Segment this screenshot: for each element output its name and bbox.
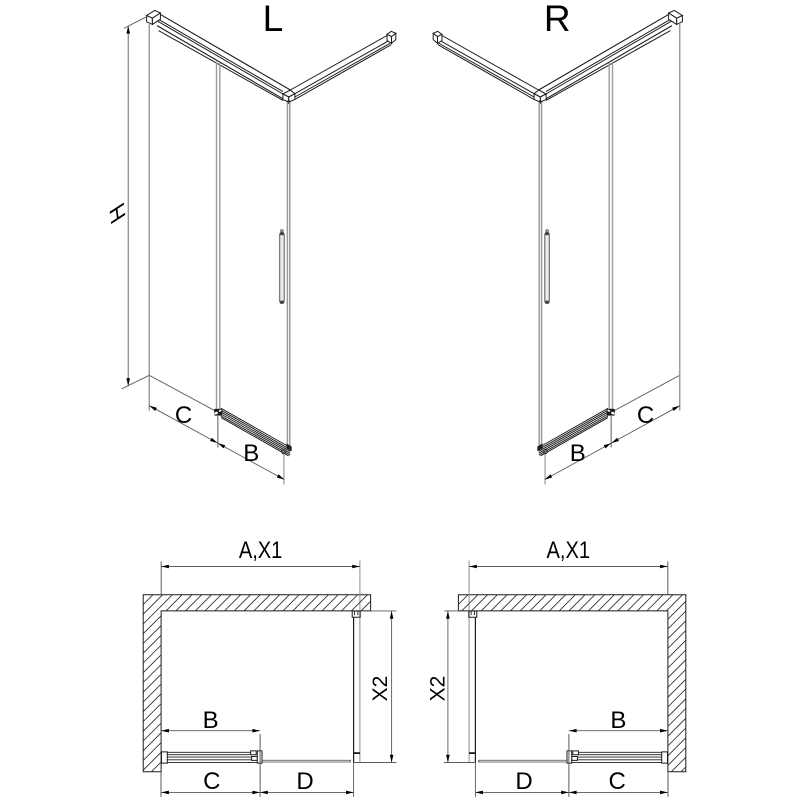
svg-text:R: R	[544, 0, 571, 39]
svg-text:B: B	[203, 707, 219, 734]
svg-text:X2: X2	[426, 676, 449, 702]
svg-text:C: C	[203, 768, 220, 795]
svg-text:L: L	[263, 0, 284, 39]
svg-text:C: C	[175, 402, 192, 429]
svg-text:C: C	[637, 402, 654, 429]
svg-text:B: B	[570, 440, 586, 467]
svg-text:C: C	[609, 768, 626, 795]
svg-text:X2: X2	[369, 676, 392, 702]
svg-text:A,X1: A,X1	[239, 537, 283, 564]
svg-text:B: B	[610, 707, 626, 734]
svg-text:D: D	[296, 768, 313, 795]
svg-text:B: B	[243, 440, 259, 467]
svg-text:A,X1: A,X1	[547, 537, 591, 564]
svg-text:D: D	[515, 768, 532, 795]
